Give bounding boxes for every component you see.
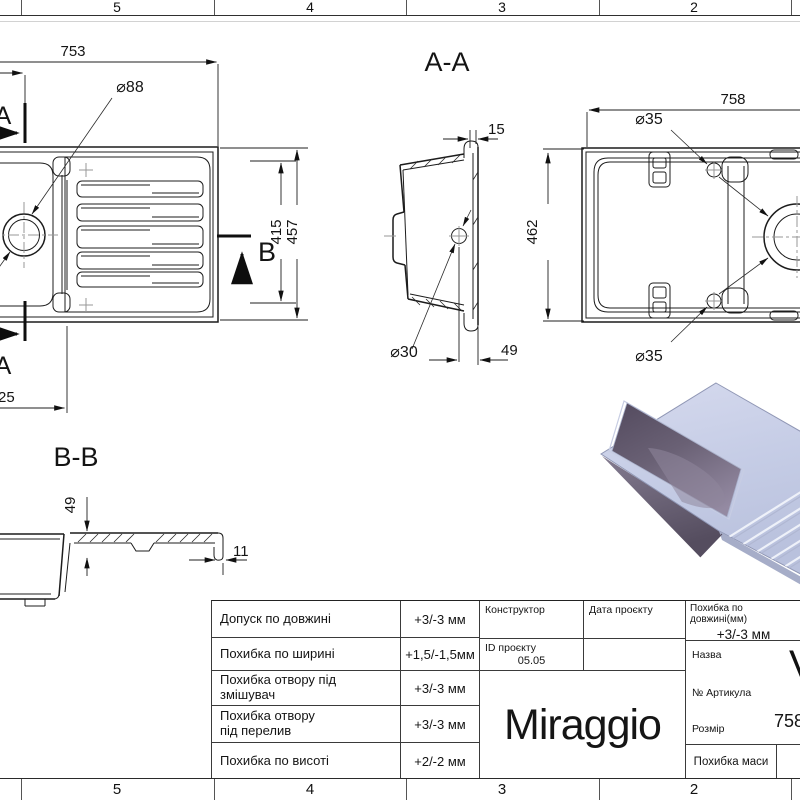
tolerance-value-1: +3/-3 мм (401, 601, 480, 638)
dim-hole-edge-label: 49 (501, 342, 518, 359)
dim-wall-label: 11 (233, 543, 249, 560)
tolerance-label-4: Похибка отвору під перелив (212, 706, 401, 743)
tolerance-value-3: +3/-3 мм (401, 671, 480, 706)
mounting-clip-bottom (649, 283, 670, 318)
section-a-top-label: A (0, 102, 12, 130)
empty-cell (584, 639, 686, 671)
size-label: Розмір (692, 723, 724, 735)
ruler-divider (406, 779, 407, 800)
section-bb-title: B-B (53, 442, 98, 472)
brand-logo: Miraggio (480, 671, 686, 779)
title-block: Допуск по довжині +3/-3 мм Похибка по ши… (211, 600, 800, 779)
project-date-cell: Дата проєкту (584, 601, 686, 639)
tolerance-label-2: Похибка по ширині (212, 638, 401, 671)
tolerance-label-1: Допуск по довжині (212, 601, 401, 638)
tolerance-value-4: +3/-3 мм (401, 706, 480, 743)
dim-offset-label: 25 (0, 389, 15, 406)
ruler-divider (791, 779, 792, 800)
dim-depth-label: 49 (62, 497, 79, 514)
dim-width-inner-label: 415 (268, 219, 285, 244)
length-tolerance-label: Похибка по довжині(мм) (686, 601, 800, 625)
tap-hole-bottom (705, 292, 723, 310)
ruler-bottom: 5 4 3 2 (0, 778, 800, 800)
ruler-bottom-col-3: 3 (498, 781, 506, 799)
dim-width-outer-label: 457 (284, 219, 301, 244)
drawing-sheet: 5 4 3 2 (0, 0, 800, 800)
length-tolerance-cell: Похибка по довжині(мм) +3/-3 мм (686, 601, 800, 641)
section-aa-view: A-A (384, 47, 584, 365)
dim-length-758-label: 758 (720, 91, 745, 108)
tolerance-value-2: +1,5/-1,5мм (401, 638, 480, 671)
constructor-cell: Конструктор (480, 601, 584, 639)
section-hatching (410, 155, 478, 311)
ruler-divider (599, 779, 600, 800)
mass-tolerance-cell: Похибка маси (686, 745, 777, 779)
drain-hole-bottom (752, 196, 800, 278)
dim-drain-label: ⌀88 (116, 79, 144, 96)
section-aa-title: A-A (424, 47, 469, 77)
project-id-value: 05.05 (480, 655, 583, 667)
name-label: Назва (692, 649, 721, 661)
ruler-bottom-col-5: 5 (113, 781, 121, 799)
dim-length-label: 753 (60, 43, 85, 60)
product-info-cell: Назва V № Артикула Розмір 758 (686, 641, 800, 745)
mounting-clip-top (649, 152, 670, 187)
tolerance-label-3: Похибка отвору під змішувач (212, 671, 401, 706)
sink-3d-render (601, 383, 800, 591)
tolerance-label-5: Похибка по висоті (212, 743, 401, 779)
drain-hole (0, 202, 58, 268)
tolerance-value-5: +2/-2 мм (401, 743, 480, 779)
ruler-divider (214, 779, 215, 800)
dim-hole-top-label: ⌀35 (635, 111, 663, 128)
dim-hole-label: ⌀30 (390, 344, 418, 361)
deck-hatching (78, 534, 212, 542)
bottom-view: ⌀35 ⌀35 758 (582, 91, 800, 365)
size-value-partial: 758 (774, 711, 800, 732)
dim-rim-label: 15 (488, 121, 505, 138)
dim-hole-bottom-label: ⌀35 (635, 348, 663, 365)
name-value-partial: V (789, 643, 800, 688)
ruler-bottom-col-4: 4 (306, 781, 314, 799)
length-tolerance-value: +3/-3 мм (686, 627, 800, 642)
top-view: ⌀88 753 A A B 415 457 (0, 43, 308, 413)
project-id-label: ID проєкту (480, 639, 583, 654)
dim-width-label: 462 (524, 219, 541, 244)
project-id-cell: ID проєкту 05.05 (480, 639, 584, 671)
section-a-bottom-label: A (0, 352, 12, 380)
article-label: № Артикула (692, 687, 751, 699)
section-bb-view: B-B 49 (0, 442, 249, 606)
tap-hole-top (705, 161, 723, 179)
rib-shading (81, 185, 199, 283)
ruler-divider (21, 779, 22, 800)
ruler-bottom-col-2: 2 (690, 781, 698, 799)
